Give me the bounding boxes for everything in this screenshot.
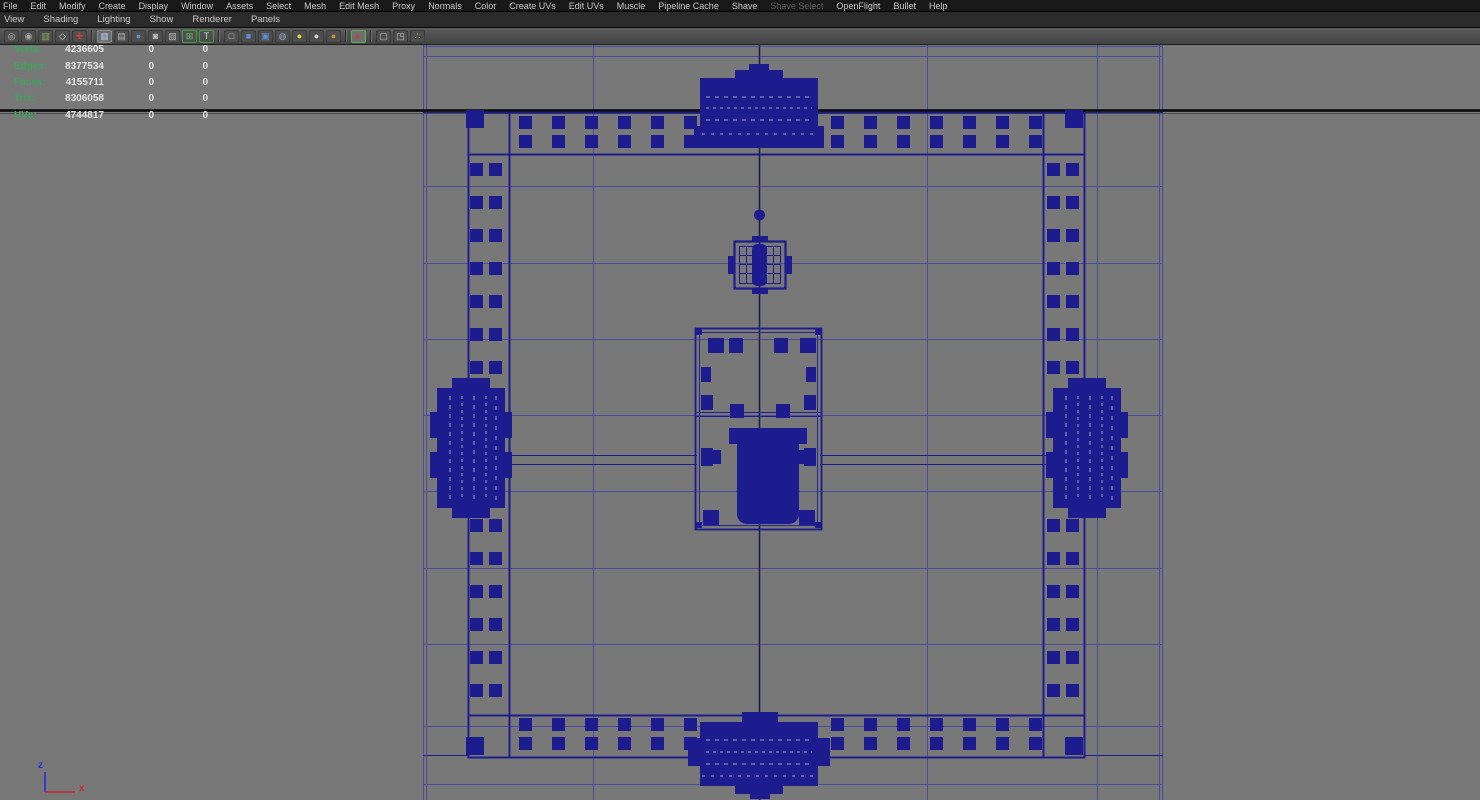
window-chrome: FileEditModifyCreateDisplayWindowAssetsS… <box>0 0 1480 45</box>
north-gate <box>694 64 824 148</box>
panel-menu-view[interactable]: View <box>4 14 24 25</box>
panel-menu-lighting[interactable]: Lighting <box>97 14 130 25</box>
menu-display[interactable]: Display <box>139 1 169 11</box>
wireframe-icon[interactable]: □ <box>224 30 239 43</box>
menu-shave[interactable]: Shave <box>732 1 758 11</box>
camera-icon[interactable]: ◎ <box>4 30 19 43</box>
viewport-canvas[interactable] <box>0 0 1480 800</box>
south-gate <box>688 712 830 799</box>
grid-icon[interactable]: ▦ <box>97 30 112 43</box>
menu-create[interactable]: Create <box>99 1 126 11</box>
menu-normals[interactable]: Normals <box>428 1 462 11</box>
image-plane-icon[interactable]: ◇ <box>55 30 70 43</box>
safe-title-icon[interactable]: T <box>199 30 214 43</box>
menu-color[interactable]: Color <box>475 1 497 11</box>
menu-edit[interactable]: Edit <box>31 1 47 11</box>
textured-icon[interactable]: ◍ <box>275 30 290 43</box>
default-light-icon[interactable]: ● <box>309 30 324 43</box>
connections-icon[interactable]: ∴ <box>410 30 425 43</box>
menu-shave-select: Shave Select <box>770 1 823 11</box>
axis-marker-dot <box>754 210 765 221</box>
wireframe-on-shaded-icon[interactable]: ▣ <box>258 30 273 43</box>
smooth-shade-icon[interactable]: ■ <box>241 30 256 43</box>
menu-pipeline-cache[interactable]: Pipeline Cache <box>658 1 719 11</box>
menu-modify[interactable]: Modify <box>59 1 86 11</box>
camera-bookmark-icon[interactable]: ◉ <box>21 30 36 43</box>
axis-gizmo-lines <box>30 758 90 798</box>
menu-proxy[interactable]: Proxy <box>392 1 415 11</box>
subdiv-cube-icon[interactable]: ▢ <box>376 30 391 43</box>
menu-edit-uvs[interactable]: Edit UVs <box>569 1 604 11</box>
gate-mask-icon[interactable]: ◙ <box>148 30 163 43</box>
menu-assets[interactable]: Assets <box>226 1 253 11</box>
main-menu-bar: FileEditModifyCreateDisplayWindowAssetsS… <box>0 0 1480 12</box>
east-gate <box>1046 378 1128 518</box>
use-all-lights-icon[interactable]: ● <box>292 30 307 43</box>
menu-create-uvs[interactable]: Create UVs <box>509 1 556 11</box>
resolution-gate-icon[interactable]: ● <box>131 30 146 43</box>
no-lights-icon[interactable]: ● <box>326 30 341 43</box>
panel-menu-renderer[interactable]: Renderer <box>192 14 232 25</box>
pavilion <box>728 236 792 294</box>
panel-menu-panels[interactable]: Panels <box>251 14 280 25</box>
menu-edit-mesh[interactable]: Edit Mesh <box>339 1 379 11</box>
menu-help[interactable]: Help <box>929 1 948 11</box>
panel-menu-show[interactable]: Show <box>150 14 174 25</box>
menu-muscle[interactable]: Muscle <box>617 1 646 11</box>
grease-pencil-icon[interactable]: ✚ <box>72 30 87 43</box>
panel-toolbar: ◎◉▥◇✚▦▤●◙▨⊞T□■▣◍●●●▸▢◳∴ <box>0 28 1480 45</box>
central-hall <box>695 329 822 530</box>
safe-action-icon[interactable]: ⊞ <box>182 30 197 43</box>
menu-mesh[interactable]: Mesh <box>304 1 326 11</box>
toolbar-separator <box>345 30 347 42</box>
temple-model <box>423 64 1163 799</box>
menu-bullet[interactable]: Bullet <box>893 1 916 11</box>
isolate-select-icon[interactable]: ▸ <box>351 30 366 43</box>
toolbar-separator <box>218 30 220 42</box>
menu-select[interactable]: Select <box>266 1 291 11</box>
toolbar-separator <box>370 30 372 42</box>
field-chart-icon[interactable]: ▨ <box>165 30 180 43</box>
west-gate <box>430 378 512 518</box>
panel-menu-shading[interactable]: Shading <box>43 14 78 25</box>
toolbar-separator <box>91 30 93 42</box>
menu-openflight[interactable]: OpenFlight <box>836 1 880 11</box>
menu-file[interactable]: File <box>3 1 18 11</box>
duplicate-panel-icon[interactable]: ◳ <box>393 30 408 43</box>
film-gate-icon[interactable]: ▤ <box>114 30 129 43</box>
menu-window[interactable]: Window <box>181 1 213 11</box>
bookmarks-icon[interactable]: ▥ <box>38 30 53 43</box>
panel-menu-bar: ViewShadingLightingShowRendererPanels <box>0 12 1480 28</box>
